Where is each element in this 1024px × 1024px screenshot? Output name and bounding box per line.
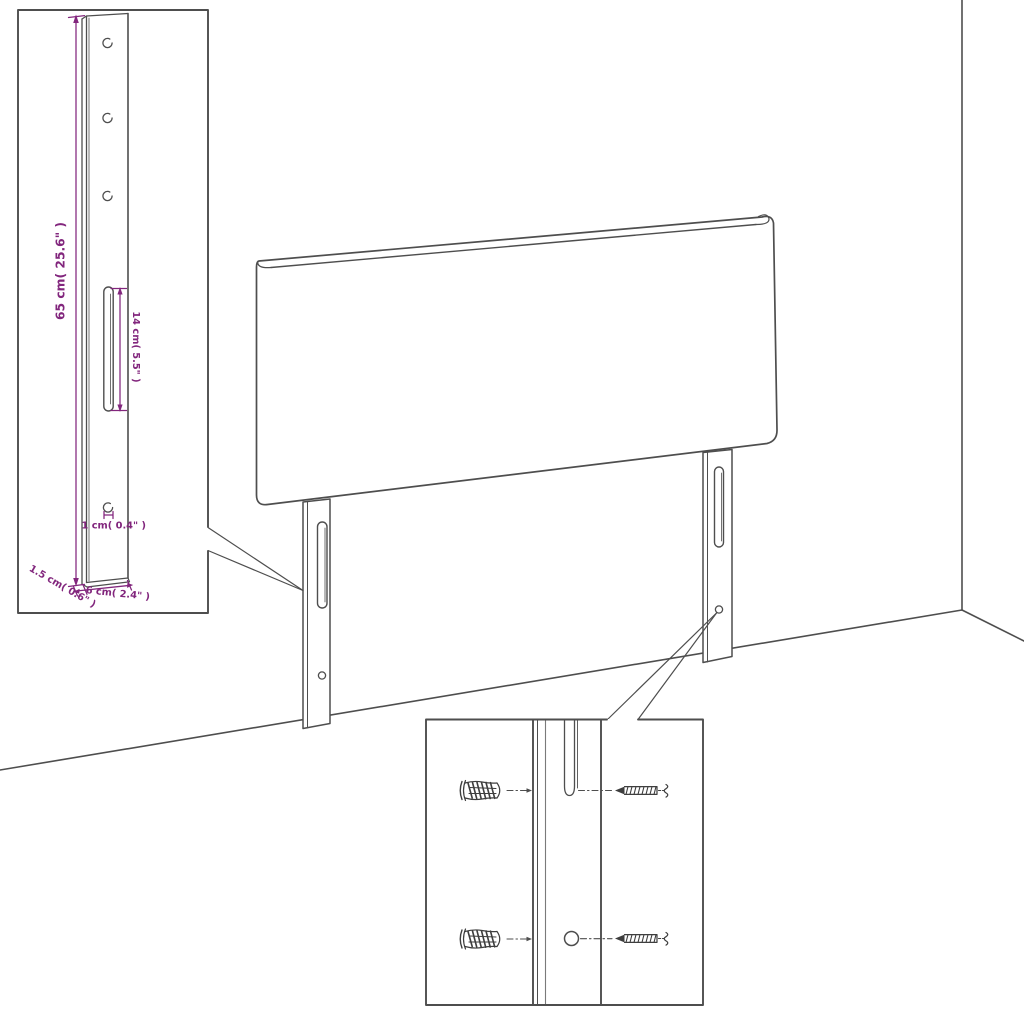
floor-line-right bbox=[962, 610, 1024, 641]
callout-leader-lines bbox=[208, 528, 717, 720]
headboard-diagram: 65 cm( 25.6" ) 14 cm( 5.5" ) 1 cm( 0.4" … bbox=[0, 0, 1024, 1024]
right-leg bbox=[703, 450, 732, 663]
dimension-label-hole: 1 cm( 0.4" ) bbox=[82, 521, 146, 532]
headboard-panel bbox=[257, 215, 778, 505]
leader-line-screw-inset-right bbox=[638, 613, 717, 720]
dimension-label-slot: 14 cm( 5.5" ) bbox=[130, 311, 141, 382]
left-leg bbox=[303, 499, 330, 729]
screw-detail-inset bbox=[426, 719, 703, 1005]
leader-line-bracket-inset-bottom bbox=[208, 551, 303, 591]
diagram-canvas: 65 cm( 25.6" ) 14 cm( 5.5" ) 1 cm( 0.4" … bbox=[0, 0, 1024, 1024]
leader-line-bracket-inset-top bbox=[208, 528, 303, 591]
bracket-detail-inset: 65 cm( 25.6" ) 14 cm( 5.5" ) 1 cm( 0.4" … bbox=[18, 10, 208, 613]
dimension-label-height: 65 cm( 25.6" ) bbox=[54, 222, 68, 320]
